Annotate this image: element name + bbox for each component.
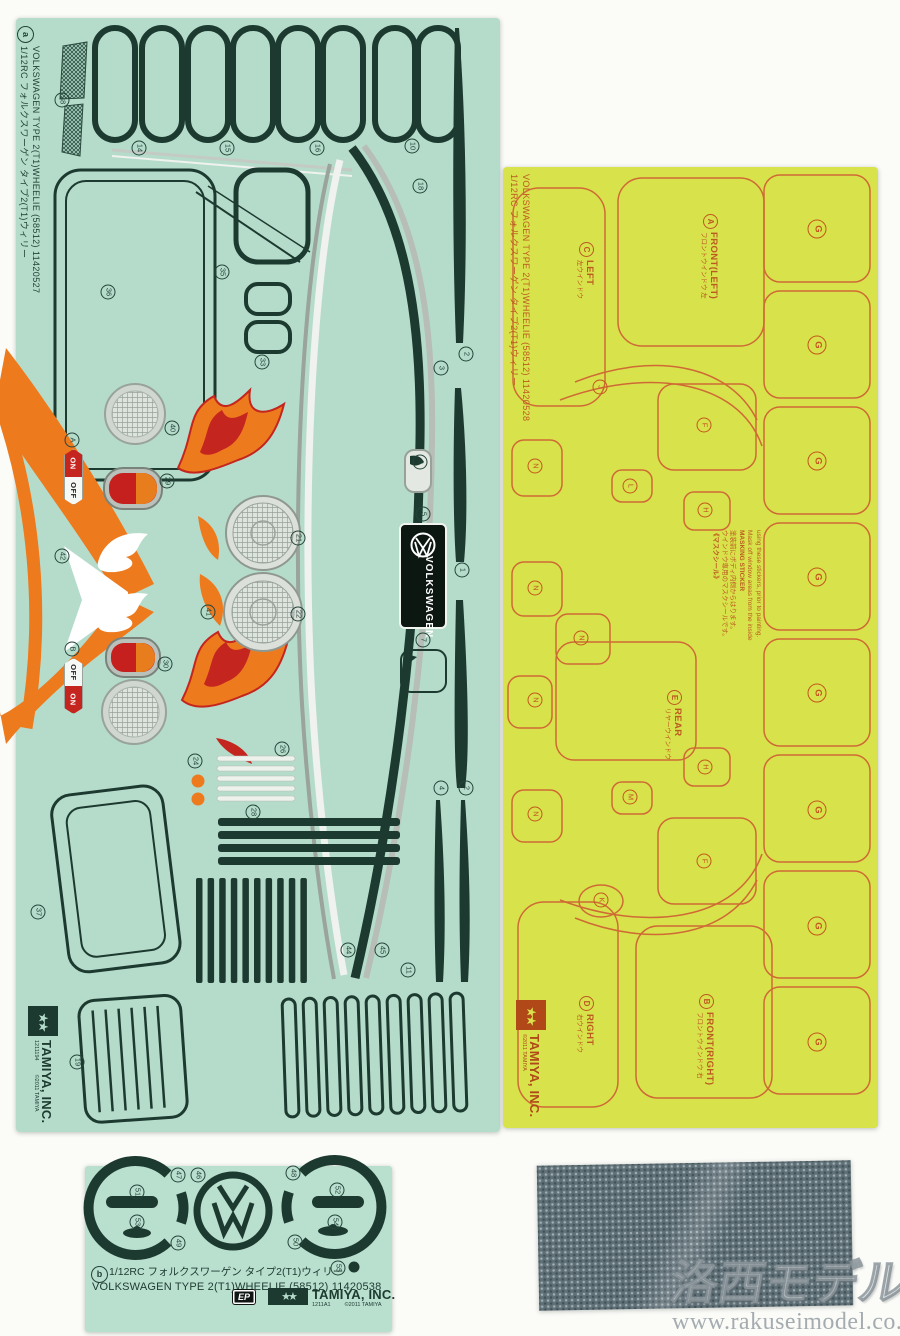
decal-sheet-a — [16, 18, 500, 1132]
watermark-url: www.rakuseimodel.co.jp — [672, 1309, 900, 1336]
masking-sticker-sheet — [503, 167, 878, 1128]
mesh-texture-sticker — [537, 1160, 853, 1310]
decal-sheet-b — [85, 1166, 392, 1332]
scanned-product-photo: { "page": {"background": "#fbfbf8"}, "wa… — [0, 0, 900, 1336]
